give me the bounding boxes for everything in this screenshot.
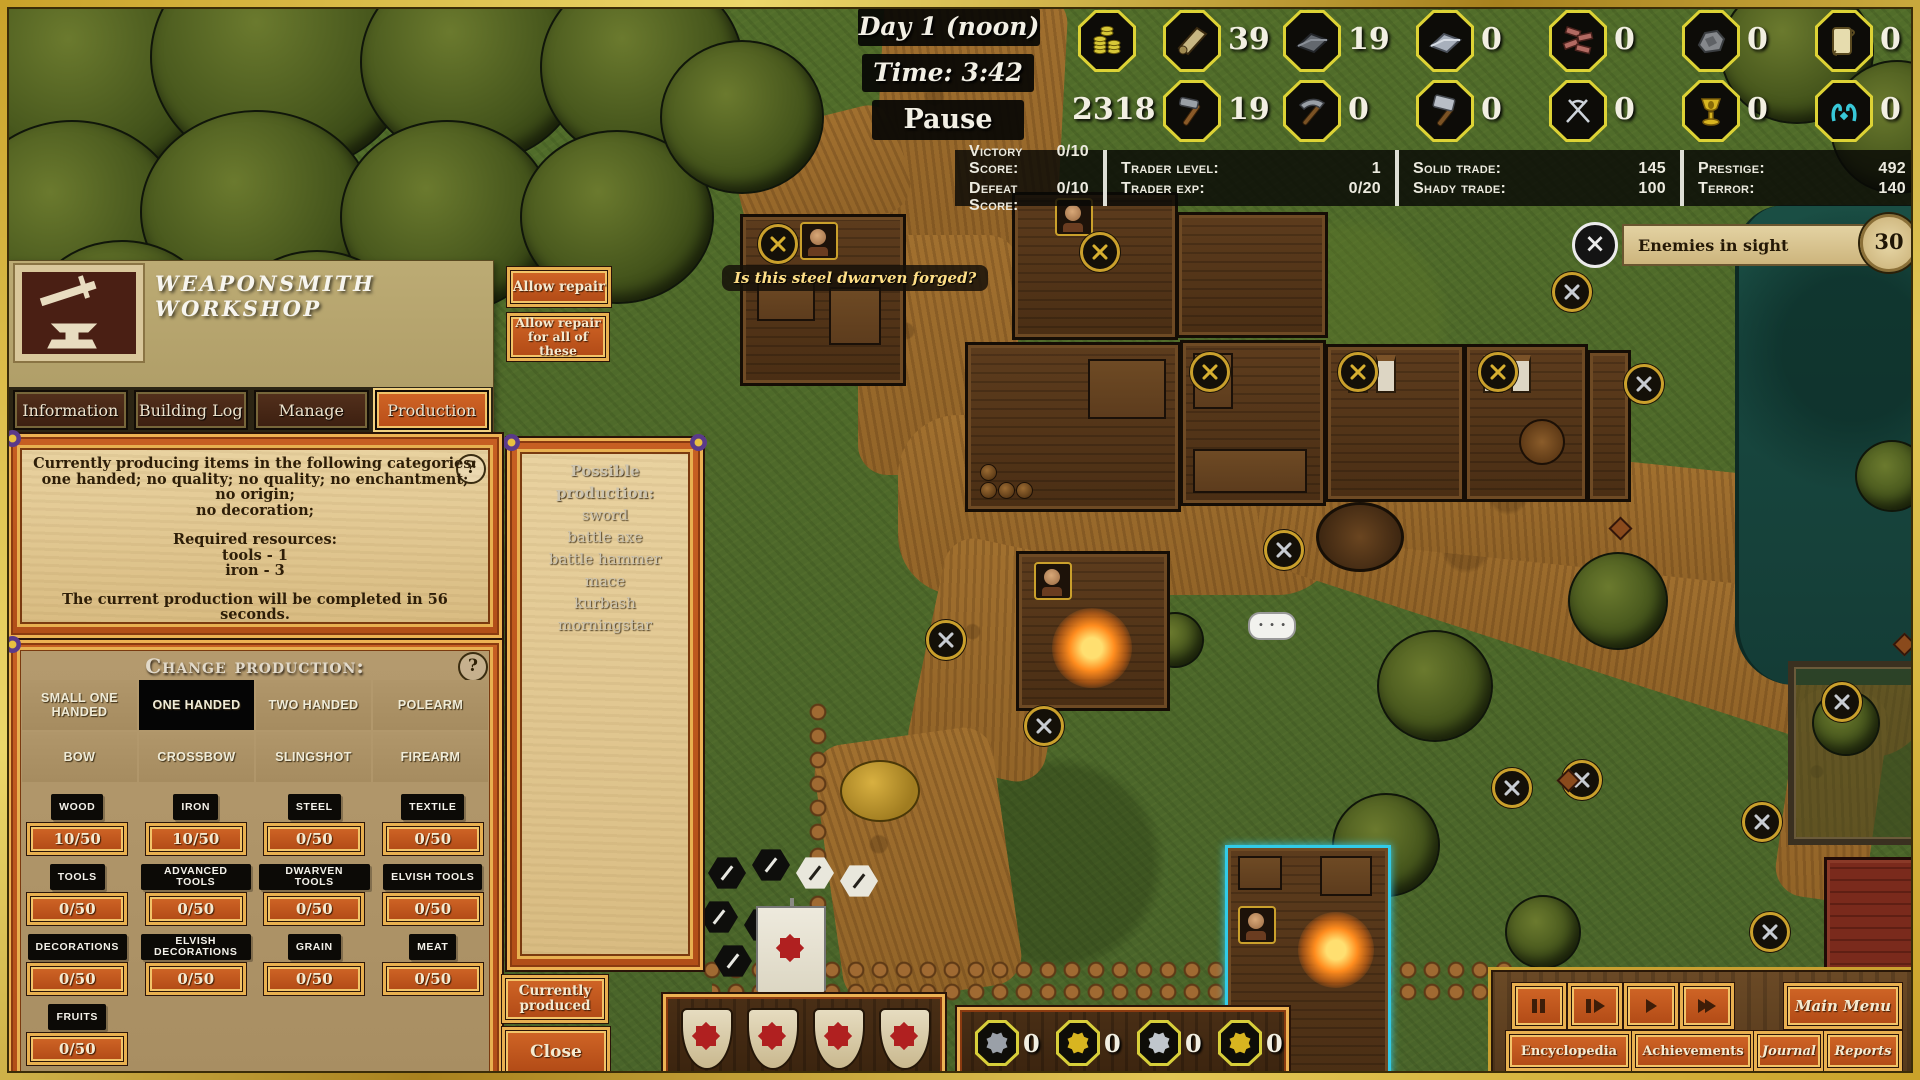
solid-trade-value: 145 <box>1638 160 1666 177</box>
production-info-panel: ? Currently producing items in the follo… <box>6 432 504 640</box>
trader-level-label: Trader level: <box>1121 160 1219 177</box>
step-speed-button[interactable] <box>1571 986 1619 1026</box>
forge-glow <box>1298 912 1374 988</box>
stock-value[interactable]: 0/50 <box>386 826 480 852</box>
hay-mound <box>840 760 920 822</box>
thought-bubble <box>1248 612 1296 640</box>
faction-shield-icon[interactable] <box>879 1008 931 1070</box>
unit-hex-marker[interactable] <box>700 900 738 934</box>
possible-production-title: Possible production: <box>525 460 685 504</box>
worker-portrait[interactable] <box>1034 562 1072 600</box>
category-crossbow[interactable]: CROSSBOW <box>139 732 254 782</box>
stock-value[interactable]: 0/50 <box>386 896 480 922</box>
allow-repair-button[interactable]: Allow repair <box>510 270 608 304</box>
trader-exp-value: 0/20 <box>1349 180 1381 197</box>
squad-count: 0 <box>1266 1029 1283 1058</box>
faction-shield-icon[interactable] <box>747 1008 799 1070</box>
decorations-icon[interactable] <box>1682 80 1740 142</box>
stock-cell: STEEL0/50 <box>259 790 370 860</box>
category-grid: SMALL ONE HANDED ONE HANDED TWO HANDED P… <box>22 680 488 782</box>
building-medallion-icon[interactable] <box>1080 232 1120 272</box>
production-info-line: no decoration; <box>32 503 478 519</box>
stock-label: ELVISH TOOLS <box>383 864 482 890</box>
prestige-label: Prestige: <box>1698 160 1765 177</box>
stock-value[interactable]: 0/50 <box>30 966 124 992</box>
score-section: Prestige:492 Terror:140 <box>1680 150 1920 206</box>
stone-icon[interactable] <box>1682 10 1740 72</box>
shield-bar <box>661 992 947 1080</box>
stock-value[interactable]: 0/50 <box>267 826 361 852</box>
enemies-banner-text: Enemies in sight <box>1624 236 1788 255</box>
building-medallion-icon[interactable] <box>1478 352 1518 392</box>
unit-hex-marker[interactable] <box>752 848 790 882</box>
stock-label: DWARVEN TOOLS <box>259 864 370 890</box>
trader-exp-label: Trader exp: <box>1121 180 1205 197</box>
fast-forward-button[interactable] <box>1683 986 1731 1026</box>
victory-score-label: Victory Score: <box>969 143 1043 177</box>
stock-cell: ADVANCED TOOLS0/50 <box>141 860 252 930</box>
close-button[interactable]: Close <box>505 1030 607 1074</box>
stock-cell: IRON10/50 <box>141 790 252 860</box>
close-icon[interactable]: × <box>1572 222 1618 268</box>
building-medallion-icon[interactable] <box>758 224 798 264</box>
game-screen: Day 1 (noon) Time: 3:42 Pause 39 19 0 0 … <box>0 0 1920 1080</box>
pause-speed-button[interactable] <box>1515 986 1563 1026</box>
stock-value[interactable]: 0/50 <box>267 966 361 992</box>
score-section: Victory Score:0/10 Defeat Score:0/10 <box>955 150 1103 206</box>
weaponsmith-banner-icon <box>13 263 145 363</box>
change-production-title: Change production: <box>8 654 502 678</box>
flag-emblem <box>780 938 800 958</box>
possible-production-item: sword <box>525 504 685 526</box>
unit-badge-icon[interactable] <box>1552 272 1592 312</box>
stock-label: ADVANCED TOOLS <box>141 864 252 890</box>
forge-glow <box>1052 608 1132 688</box>
squad-icon[interactable] <box>1137 1020 1181 1066</box>
day-display: Day 1 (noon) <box>858 8 1040 46</box>
stock-label: STEEL <box>288 794 341 820</box>
stock-cell: TOOLS0/50 <box>22 860 133 930</box>
stock-cell: WOOD10/50 <box>22 790 133 860</box>
faction-shield-icon[interactable] <box>681 1008 733 1070</box>
category-polearm[interactable]: POLEARM <box>373 680 488 730</box>
category-firearm[interactable]: FIREARM <box>373 732 488 782</box>
stock-value[interactable]: 0/50 <box>30 1036 124 1062</box>
stock-value[interactable]: 0/50 <box>267 896 361 922</box>
tab-information[interactable]: Information <box>13 390 128 430</box>
bricks-icon[interactable] <box>1549 10 1607 72</box>
workshop-header-panel: WEAPONSMITH WORKSHOP Information Buildin… <box>8 260 494 434</box>
workshop-tabs: Information Building Log Manage Producti… <box>9 387 493 433</box>
production-info-line: Currently producing items in the followi… <box>32 456 478 472</box>
possible-production-item: battle axe <box>525 526 685 548</box>
squad-icon[interactable] <box>1056 1020 1100 1066</box>
iron-icon[interactable] <box>1283 10 1341 72</box>
stock-cell: GRAIN0/50 <box>259 930 370 1000</box>
squad-count: 0 <box>1104 1029 1121 1058</box>
workshop-title: WEAPONSMITH WORKSHOP <box>155 271 485 321</box>
squad-icon[interactable] <box>975 1020 1019 1066</box>
production-info-line: one handed; no quality; no quality; no e… <box>32 472 478 503</box>
possible-production-item: kurbash <box>525 592 685 614</box>
victory-score-value: 0/10 <box>1057 143 1089 177</box>
stock-cell: FRUITS0/50 <box>22 1000 133 1070</box>
stock-label: GRAIN <box>288 934 341 960</box>
coins-icon[interactable] <box>1078 10 1136 72</box>
speech-bubble: Is this steel dwarven forged? <box>722 265 988 291</box>
stock-cell: DWARVEN TOOLS0/50 <box>259 860 370 930</box>
stock-value[interactable]: 10/50 <box>149 826 243 852</box>
possible-production-item: morningstar <box>525 614 685 636</box>
change-production-panel: Change production: ? SMALL ONE HANDED ON… <box>6 638 504 1080</box>
unit-badge-icon[interactable] <box>1742 802 1782 842</box>
menu-panel: Main Menu Encyclopedia Achievements Jour… <box>1488 967 1918 1079</box>
tab-manage[interactable]: Manage <box>254 390 369 430</box>
stock-value[interactable]: 0/50 <box>30 896 124 922</box>
defeat-score-label: Defeat Score: <box>969 180 1043 214</box>
stock-label: WOOD <box>51 794 103 820</box>
stock-value[interactable]: 0/50 <box>149 896 243 922</box>
journal-button[interactable]: Journal <box>1757 1034 1821 1068</box>
help-icon[interactable]: ? <box>458 652 488 682</box>
stock-label: IRON <box>173 794 218 820</box>
round-hut[interactable] <box>1316 502 1404 572</box>
elvish-tools-icon[interactable] <box>1549 80 1607 142</box>
unit-hex-marker[interactable] <box>708 856 746 890</box>
faction-shield-icon[interactable] <box>813 1008 865 1070</box>
unit-badge-icon[interactable] <box>1264 530 1304 570</box>
allow-repair-all-button[interactable]: Allow repair for all of these <box>510 316 606 358</box>
required-resource: iron - 3 <box>32 563 478 579</box>
currently-produced-button[interactable]: Currently produced <box>505 978 605 1020</box>
tree <box>1855 440 1920 512</box>
stock-value[interactable]: 10/50 <box>30 826 124 852</box>
building-medallion-icon[interactable] <box>1190 352 1230 392</box>
squad-counter-bar: 0 0 0 0 <box>955 1005 1291 1080</box>
scroll-icon[interactable] <box>1815 10 1873 72</box>
building[interactable] <box>1587 350 1631 502</box>
defeat-score-value: 0/10 <box>1057 180 1089 214</box>
possible-production-item: battle hammer <box>525 548 685 570</box>
category-slingshot[interactable]: SLINGSHOT <box>256 732 371 782</box>
elvish-decorations-icon[interactable] <box>1815 80 1873 142</box>
round-table <box>1519 419 1565 465</box>
unit-badge-icon[interactable] <box>926 620 966 660</box>
unit-badge-icon[interactable] <box>1750 912 1790 952</box>
stock-cell: MEAT0/50 <box>378 930 489 1000</box>
building-medallion-icon[interactable] <box>1338 352 1378 392</box>
category-one-handed[interactable]: ONE HANDED <box>139 680 254 730</box>
prestige-value: 492 <box>1878 160 1906 177</box>
scroll-count: 0 <box>1880 22 1920 57</box>
tab-building-log[interactable]: Building Log <box>134 390 249 430</box>
elvish-decorations-count: 0 <box>1880 92 1920 127</box>
encyclopedia-button[interactable]: Encyclopedia <box>1509 1034 1629 1068</box>
wood-icon[interactable] <box>1163 10 1221 72</box>
squad-icon[interactable] <box>1218 1020 1262 1066</box>
stock-label: ELVISH DECORATIONS <box>141 934 252 960</box>
achievements-button[interactable]: Achievements <box>1635 1034 1751 1068</box>
category-small-one-handed[interactable]: SMALL ONE HANDED <box>22 680 137 730</box>
trader-level-value: 1 <box>1372 160 1381 177</box>
dwarven-tools-icon[interactable] <box>1416 80 1474 142</box>
possible-production-item: mace <box>525 570 685 592</box>
required-resource: tools - 1 <box>32 548 478 564</box>
time-display: Time: 3:42 <box>862 54 1034 92</box>
pause-button[interactable]: Pause <box>872 100 1024 140</box>
worker-portrait[interactable] <box>800 222 838 260</box>
squad-count: 0 <box>1185 1029 1202 1058</box>
shady-trade-value: 100 <box>1638 180 1666 197</box>
stock-label: TOOLS <box>50 864 105 890</box>
worker-portrait[interactable] <box>1238 906 1276 944</box>
unit-badge-icon[interactable] <box>1492 768 1532 808</box>
score-section: Trader level:1 Trader exp:0/20 <box>1103 150 1395 206</box>
advanced-tools-icon[interactable] <box>1283 80 1341 142</box>
category-bow[interactable]: BOW <box>22 732 137 782</box>
tree <box>660 40 824 194</box>
required-resources-title: Required resources: <box>32 532 478 548</box>
stock-label: TEXTILE <box>401 794 464 820</box>
tree <box>1568 552 1668 650</box>
completion-time-text: The current production will be completed… <box>32 592 478 623</box>
stock-label: DECORATIONS <box>28 934 127 960</box>
shady-trade-label: Shady trade: <box>1413 180 1506 197</box>
building[interactable] <box>1176 212 1328 338</box>
stock-cell: ELVISH TOOLS0/50 <box>378 860 489 930</box>
terror-value: 140 <box>1878 180 1906 197</box>
tree <box>1377 630 1493 742</box>
reports-button[interactable]: Reports <box>1827 1034 1899 1068</box>
stock-label: MEAT <box>409 934 456 960</box>
stock-value[interactable]: 0/50 <box>386 966 480 992</box>
score-bar: Victory Score:0/10 Defeat Score:0/10 Tra… <box>955 150 1920 206</box>
coins-total: 2318 <box>1072 92 1162 127</box>
stock-grid: WOOD10/50 IRON10/50 STEEL0/50 TEXTILE0/5… <box>22 790 488 1070</box>
enemies-banner[interactable]: Enemies in sight <box>1622 224 1884 266</box>
possible-production-panel: Possible production: sword battle axe ba… <box>505 436 705 972</box>
score-section: Solid trade:145 Shady trade:100 <box>1395 150 1680 206</box>
steel-icon[interactable] <box>1416 10 1474 72</box>
category-two-handed[interactable]: TWO HANDED <box>256 680 371 730</box>
stock-label: FRUITS <box>48 1004 106 1030</box>
squad-count: 0 <box>1023 1029 1040 1058</box>
unit-badge-icon[interactable] <box>1822 682 1862 722</box>
enemies-count-badge: 30 <box>1860 214 1918 272</box>
stock-cell: TEXTILE0/50 <box>378 790 489 860</box>
tab-production[interactable]: Production <box>375 390 490 430</box>
stock-cell: ELVISH DECORATIONS0/50 <box>141 930 252 1000</box>
unit-badge-icon[interactable] <box>1024 706 1064 746</box>
unit-badge-icon[interactable] <box>1624 364 1664 404</box>
tools-icon[interactable] <box>1163 80 1221 142</box>
main-menu-button[interactable]: Main Menu <box>1787 986 1899 1026</box>
stock-value[interactable]: 0/50 <box>149 966 243 992</box>
solid-trade-label: Solid trade: <box>1413 160 1501 177</box>
play-speed-button[interactable] <box>1627 986 1675 1026</box>
stock-cell: DECORATIONS0/50 <box>22 930 133 1000</box>
terror-label: Terror: <box>1698 180 1755 197</box>
building[interactable] <box>965 342 1181 512</box>
